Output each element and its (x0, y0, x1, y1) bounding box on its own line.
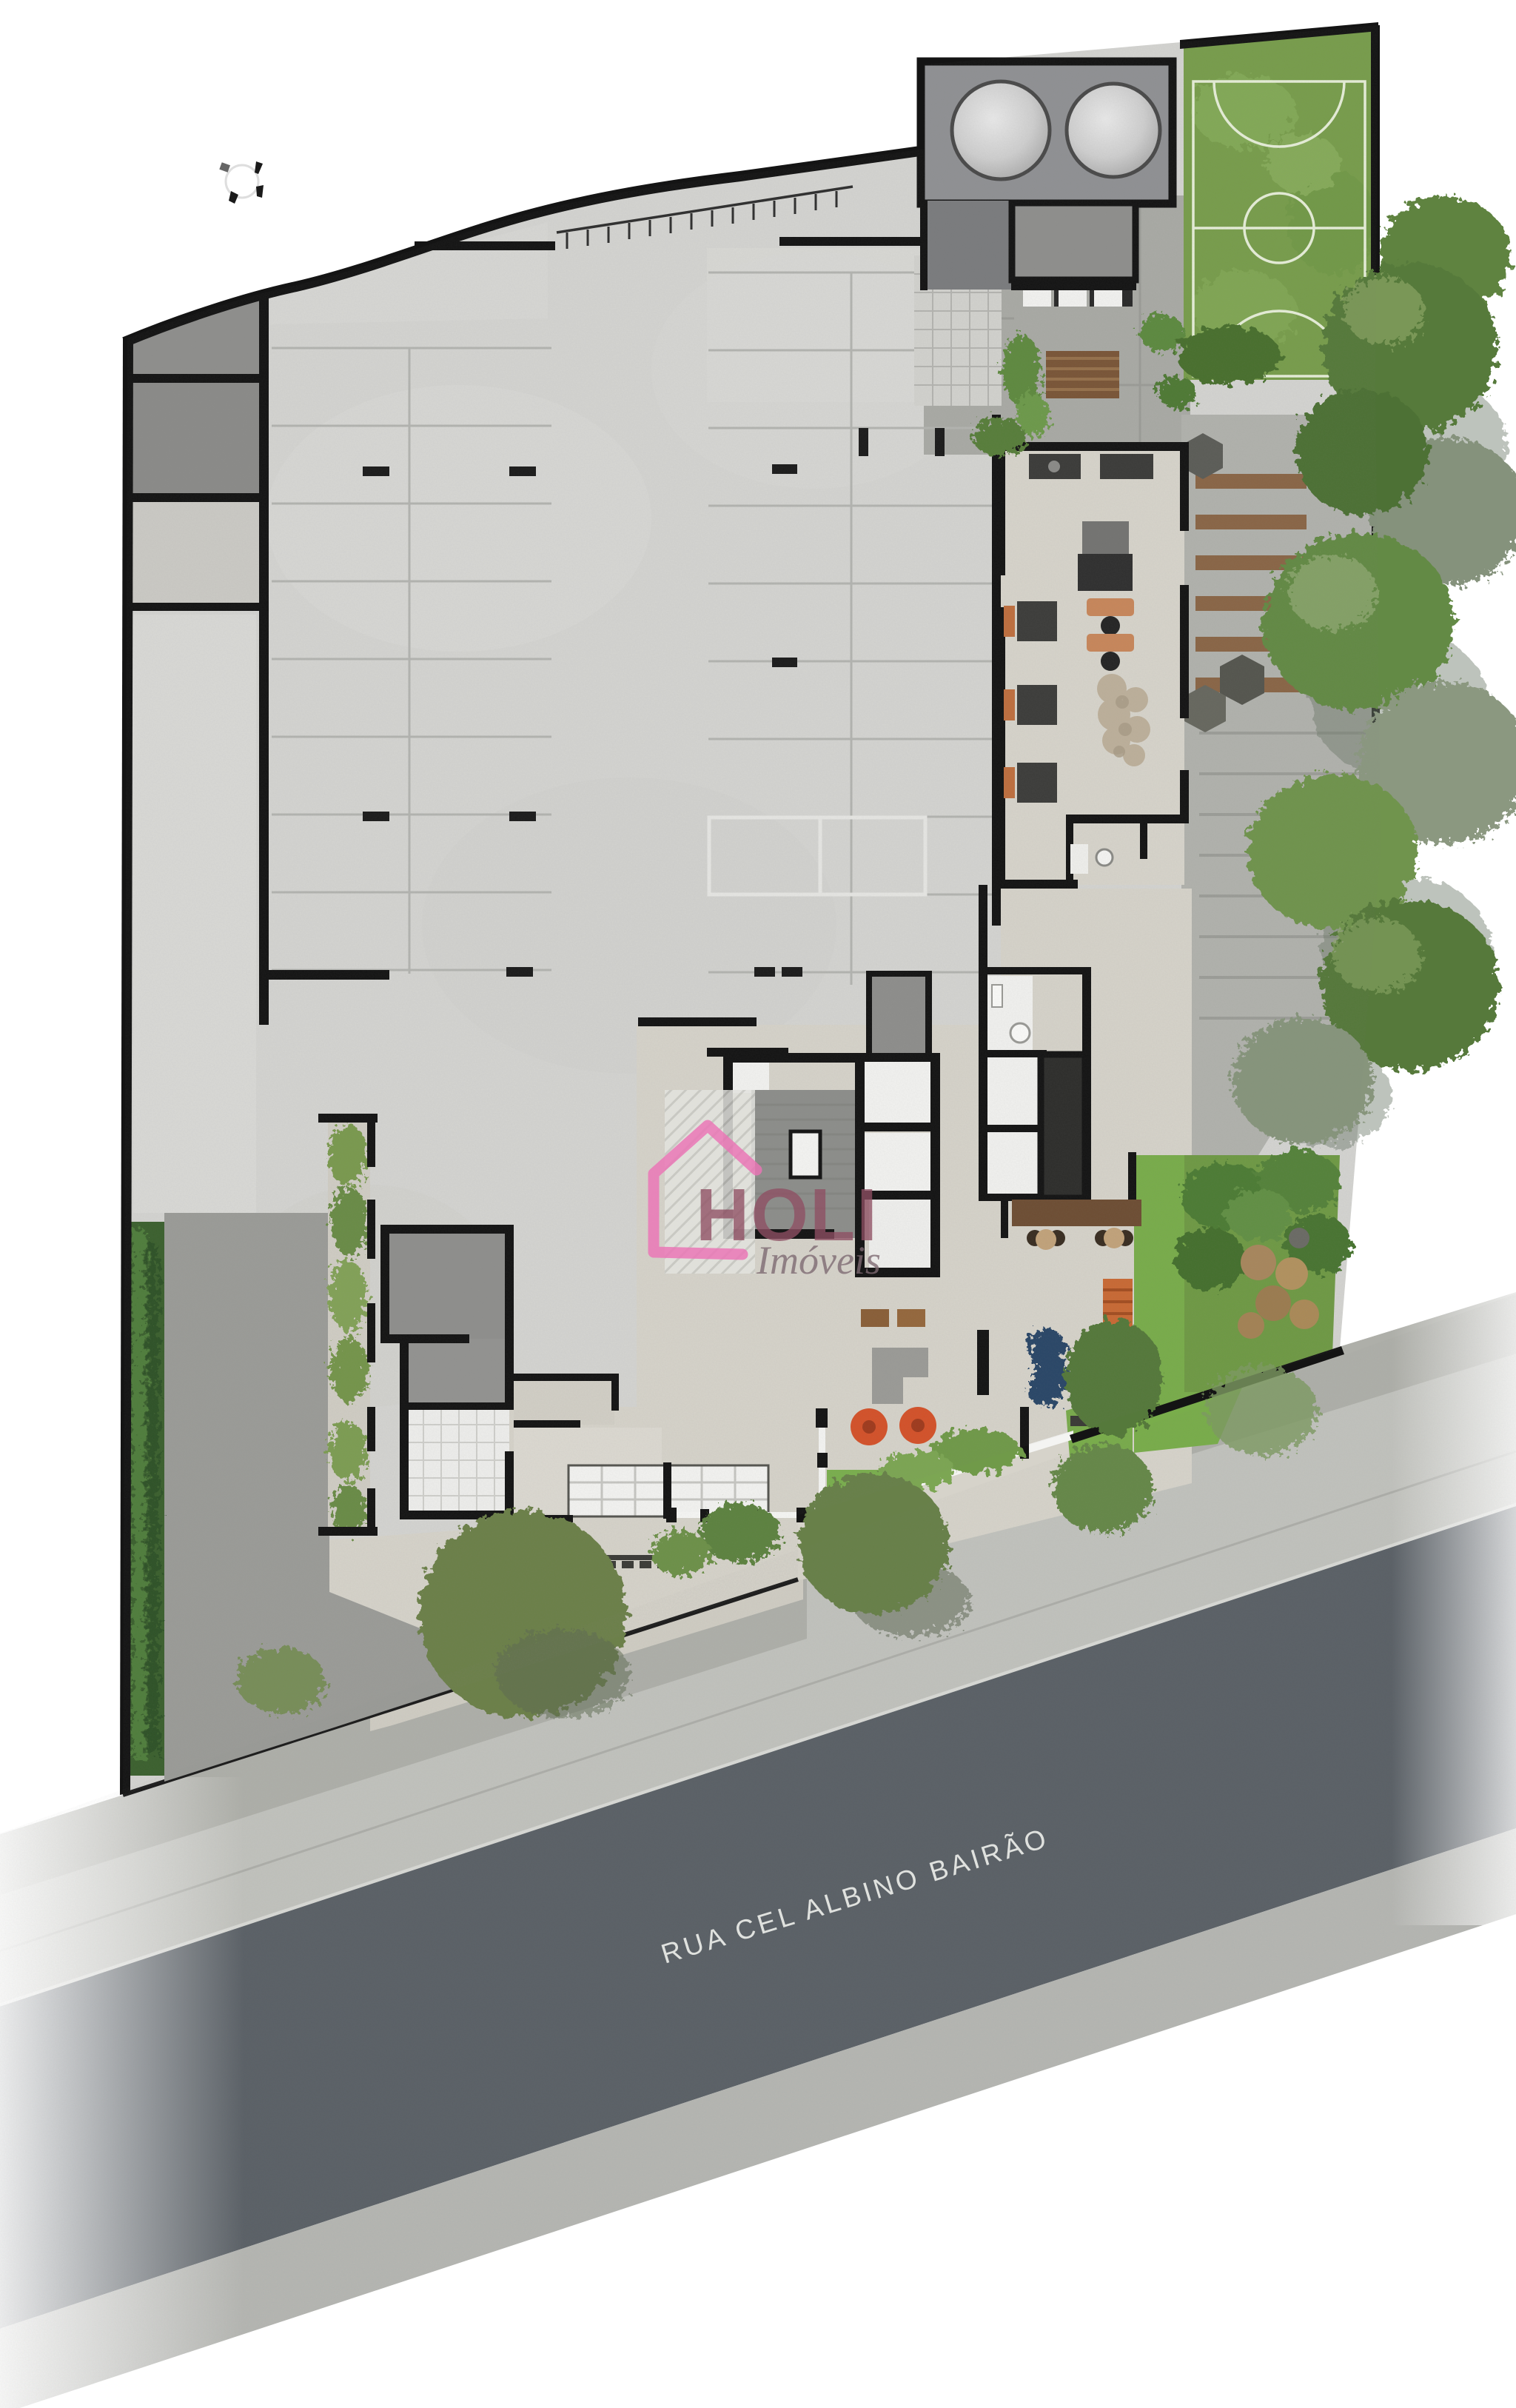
svg-text:Imóveis: Imóveis (756, 1238, 881, 1282)
